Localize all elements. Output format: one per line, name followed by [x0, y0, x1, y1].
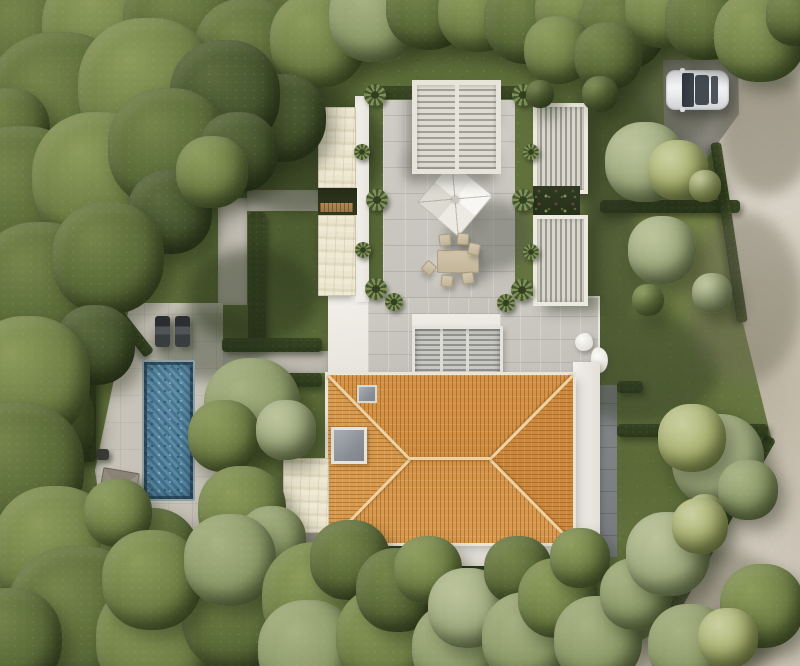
tree-canopy: [625, 0, 705, 48]
tree-canopy: [714, 0, 800, 82]
tree-canopy: [102, 530, 202, 630]
car-windshield: [682, 73, 694, 107]
tree-canopy: [394, 536, 462, 604]
house-parapet-south: [440, 543, 602, 566]
tree-canopy: [42, 0, 174, 94]
tree-canopy: [204, 358, 300, 454]
tree-canopy: [692, 273, 732, 313]
car-body: [666, 70, 729, 110]
palm-plant: [365, 278, 387, 300]
tree-canopy: [526, 80, 554, 108]
car-mirror: [680, 108, 685, 112]
dining-chair: [421, 260, 438, 277]
palm-plant: [366, 189, 388, 211]
dining-chair: [467, 242, 481, 256]
tree-canopy: [188, 400, 260, 472]
tree-canopy: [665, 0, 745, 60]
roof-face-north: [328, 375, 573, 543]
side-walkway: [598, 385, 617, 558]
tree-canopy: [52, 202, 164, 314]
tree-canopy: [648, 140, 708, 200]
tree-canopy: [198, 112, 278, 192]
ground-shadow: [187, 249, 317, 344]
courtyard-tiles: [368, 314, 412, 378]
dining-chair: [456, 232, 469, 245]
flat-roof-section: [328, 296, 600, 378]
palm-plant: [523, 244, 539, 260]
tree-canopy: [0, 222, 106, 354]
tree-canopy: [0, 0, 102, 112]
hedge: [96, 288, 155, 358]
palm-plant: [511, 279, 533, 301]
sculpture-chair: [575, 333, 593, 351]
tree-canopy: [632, 284, 664, 316]
ground-shadow: [719, 65, 800, 195]
car-mirror: [680, 68, 685, 72]
slatted-pergola-north: [533, 103, 588, 194]
sun-lounger: [175, 316, 190, 347]
palm-plant: [512, 189, 534, 211]
retractable-awning: [318, 215, 356, 296]
hedge: [617, 424, 768, 437]
hedge: [248, 212, 266, 340]
tree-canopy: [658, 404, 726, 472]
ground-shadow: [565, 202, 650, 322]
pergola-mullion: [455, 85, 459, 169]
hedge: [617, 381, 643, 393]
tree-canopy: [128, 170, 212, 254]
tree-canopy: [198, 466, 286, 554]
tree-canopy: [84, 479, 152, 547]
tree-canopy: [626, 512, 710, 596]
car-rear-window: [711, 76, 718, 104]
dining-chair: [461, 271, 475, 285]
tree-canopy: [356, 548, 440, 632]
tree-canopy: [32, 112, 164, 244]
palm-plant: [385, 293, 403, 311]
road: [0, 0, 800, 666]
hedge: [222, 338, 322, 352]
tree-canopy: [238, 506, 306, 574]
roof-skylight-small: [357, 385, 377, 403]
ground-shadow: [565, 75, 660, 225]
tree-canopy: [0, 402, 84, 534]
tree-canopy: [582, 76, 618, 112]
roof-terrace: [383, 100, 515, 298]
ground-shadow: [560, 313, 720, 423]
palm-plant: [354, 144, 370, 160]
umbrella-peak: [452, 196, 459, 203]
tree-canopy: [484, 0, 572, 64]
terracotta-hip-roof: [328, 375, 573, 543]
tree-canopy: [0, 126, 92, 270]
slatted-pergola-south: [533, 215, 588, 306]
roof-hip-ridge: [489, 459, 574, 545]
tree-canopy: [412, 602, 504, 666]
tree-canopy: [0, 486, 117, 610]
dining-chair: [440, 274, 453, 287]
roof-hip-ridge: [489, 374, 574, 460]
tree-canopy: [718, 460, 778, 520]
tree-canopy: [535, 0, 615, 50]
tree-canopy: [176, 136, 248, 208]
tree-canopy: [648, 604, 732, 666]
tree-canopy: [262, 542, 374, 654]
tree-canopy: [55, 305, 135, 385]
tree-canopy: [687, 494, 723, 530]
dining-chair: [438, 233, 451, 246]
palm-plant: [364, 84, 386, 106]
tree-canopy: [78, 18, 218, 158]
pool-deck: [0, 0, 800, 666]
tree-canopy: [0, 88, 50, 172]
hedge: [222, 373, 322, 387]
awning-base: [289, 533, 323, 543]
roof-hip-ridge: [327, 374, 412, 461]
garden-path-lower: [222, 351, 362, 373]
wood-deck-strip: [320, 203, 353, 212]
pool-side-chair: [96, 449, 109, 460]
tree-canopy: [182, 560, 294, 666]
roof-face-south: [328, 375, 573, 543]
tree-canopy: [6, 546, 150, 666]
roof-face-west: [328, 375, 573, 543]
tree-canopy: [698, 608, 758, 666]
tree-canopy: [672, 414, 764, 506]
tree-canopy: [720, 564, 800, 648]
hedge: [445, 566, 598, 578]
tree-canopy: [108, 88, 228, 208]
gray-shade-umbrella: [97, 467, 140, 510]
roof-hip-ridge: [327, 458, 412, 545]
house-parapet-east: [573, 362, 600, 566]
courtyard-tiles: [368, 296, 515, 314]
tree-canopy: [766, 0, 800, 46]
car-sunroof: [695, 75, 709, 105]
tree-canopy: [600, 558, 672, 630]
tree-canopy: [518, 558, 598, 638]
boundary-hedge-east: [710, 142, 748, 324]
tree-canopy: [0, 316, 90, 440]
tree-canopy: [310, 520, 390, 600]
ground-shadow: [636, 51, 716, 141]
tree-canopy: [184, 514, 276, 606]
outdoor-dining-table: [437, 250, 479, 273]
tree-canopy: [256, 400, 316, 460]
planter-box: [533, 186, 580, 215]
tree-canopy: [170, 40, 280, 150]
white-car: [666, 70, 729, 110]
hedge: [600, 200, 740, 213]
roof-main-ridge: [408, 457, 492, 460]
ground-shadow: [355, 427, 585, 557]
tree-canopy: [524, 16, 592, 84]
tree-canopy: [0, 32, 136, 184]
ground-shadow: [687, 213, 800, 383]
planting-bed: [368, 86, 534, 99]
tree-canopy: [123, 0, 247, 84]
boundary-hedge-southeast: [658, 434, 776, 632]
garden-path-upper: [247, 190, 319, 211]
tree-canopy: [574, 22, 642, 90]
palm-plant: [497, 294, 515, 312]
tree-canopy: [270, 0, 366, 88]
tree-canopy: [100, 508, 200, 608]
palm-plant: [523, 144, 539, 160]
tree-canopy: [238, 74, 326, 162]
tree-canopy: [689, 170, 721, 202]
tree-canopy: [428, 568, 508, 648]
tree-canopy: [605, 122, 685, 202]
louvered-pergola: [412, 80, 501, 174]
retractable-awning: [318, 107, 356, 188]
swimming-pool: [142, 360, 195, 501]
hedge: [76, 352, 96, 462]
roof-skylight-large: [331, 427, 367, 464]
tree-canopy: [554, 596, 642, 666]
ground-shadow: [390, 514, 570, 574]
garden-path-vertical: [218, 198, 247, 305]
tree-canopy: [386, 0, 470, 50]
tree-canopy: [438, 0, 518, 52]
tree-canopy: [194, 0, 302, 106]
recessed-entry: [318, 188, 357, 215]
ground-shadow: [150, 310, 270, 380]
tree-canopy: [329, 0, 421, 62]
ground-shadow: [623, 547, 793, 666]
tree-canopy: [482, 592, 574, 666]
terrace-west-wall: [355, 96, 369, 302]
palm-plant: [355, 242, 371, 258]
east-patio-tiles: [500, 298, 598, 386]
sculpture-chair: [589, 346, 609, 374]
louvered-skylight: [412, 326, 503, 382]
tree-canopy: [550, 528, 610, 588]
palm-plant: [512, 84, 534, 106]
tree-canopy: [0, 588, 62, 666]
roof-face-east: [328, 375, 573, 543]
tree-canopy: [258, 600, 358, 666]
west-facade-awning: [283, 458, 329, 533]
tree-canopy: [578, 0, 666, 70]
sun-lounger: [155, 316, 170, 347]
tree-canopy: [672, 498, 728, 554]
umbrella-shadow: [446, 200, 532, 272]
white-patio-umbrella: [417, 161, 493, 237]
tree-canopy: [628, 216, 696, 284]
scene-canvas: [0, 0, 800, 666]
tree-canopy: [96, 578, 220, 666]
tree-canopy: [484, 536, 552, 604]
driveway: [0, 0, 800, 666]
ground-shadow: [250, 511, 470, 621]
tree-canopy: [336, 586, 440, 666]
ground-shadow: [215, 85, 385, 215]
tree-canopy: [0, 368, 94, 472]
